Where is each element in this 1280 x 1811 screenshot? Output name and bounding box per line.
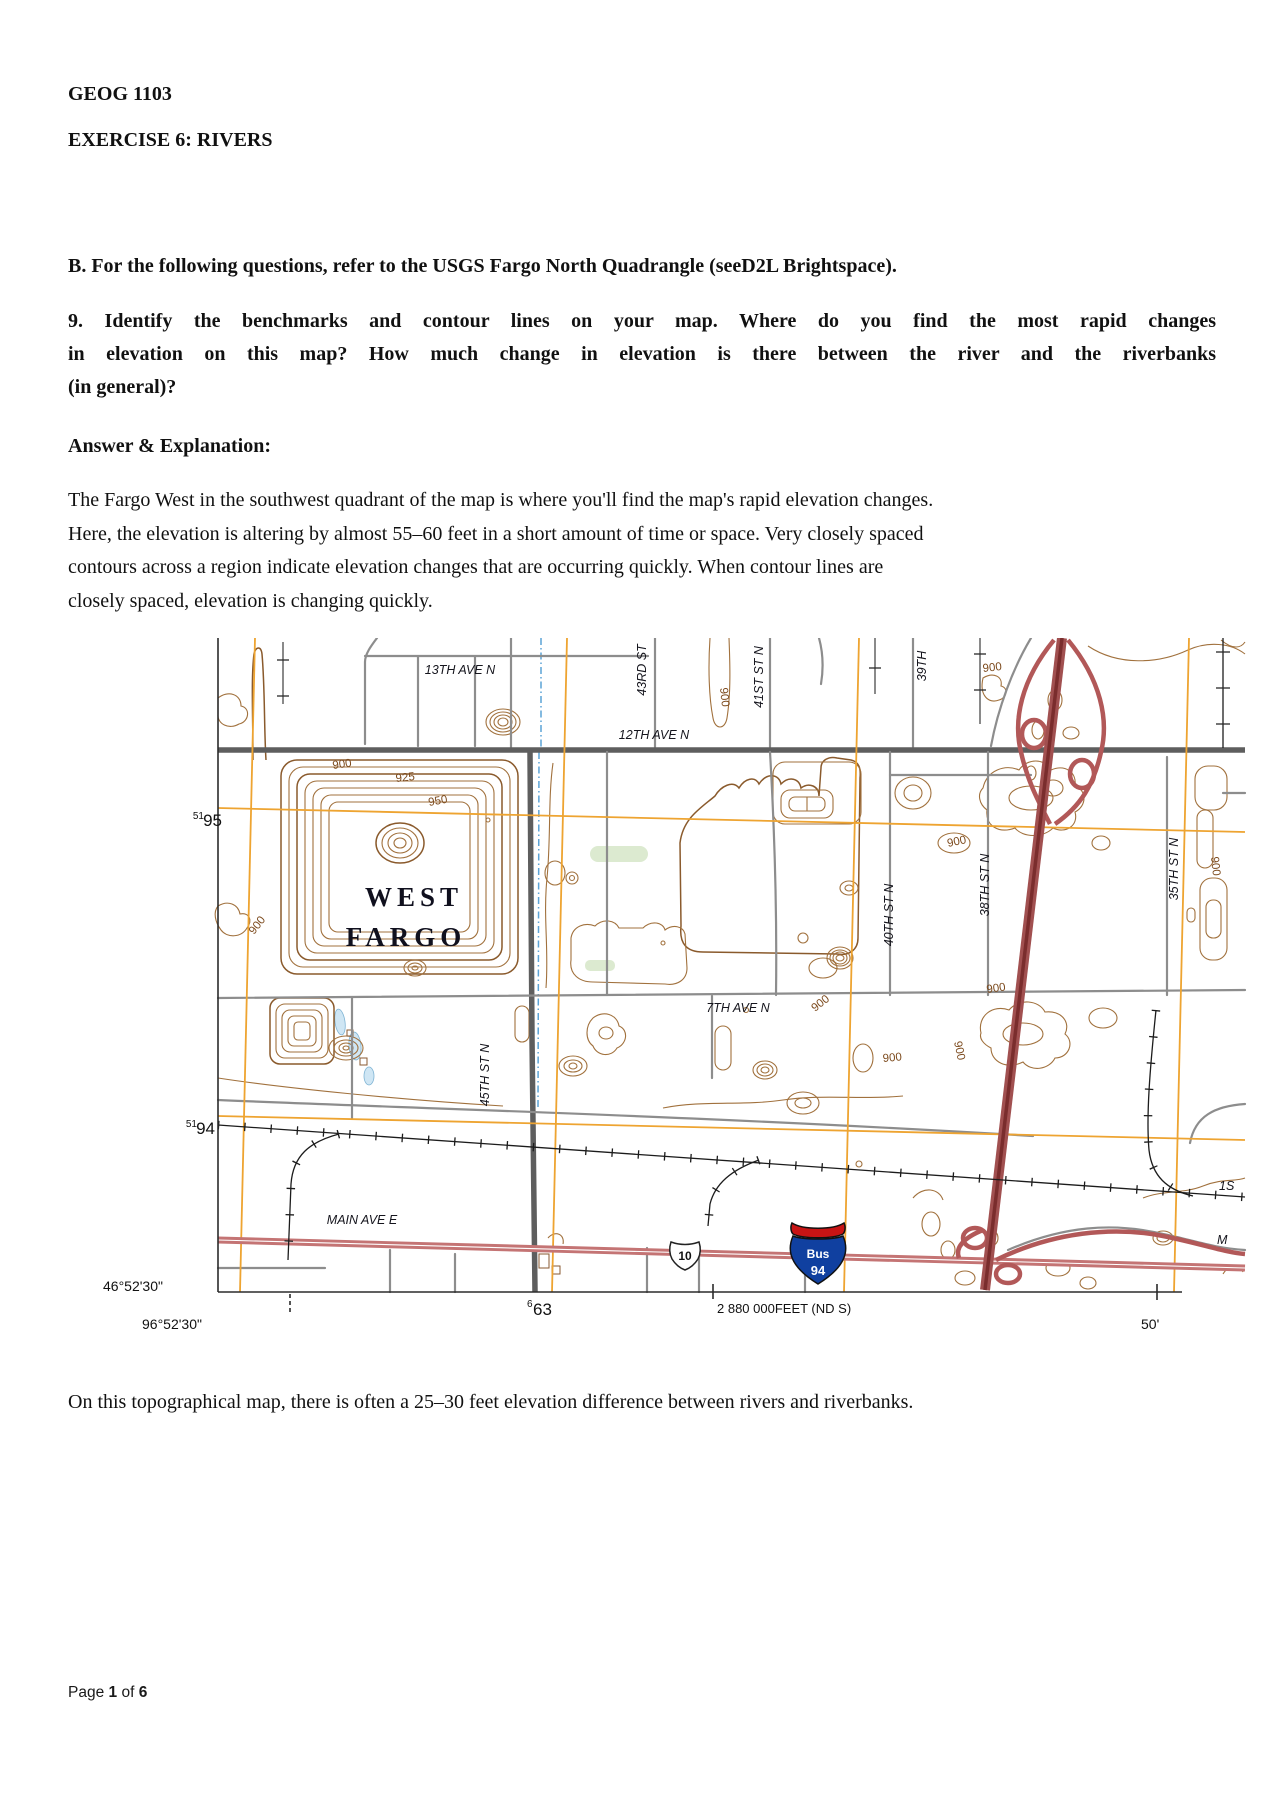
svg-text:Bus: Bus: [807, 1247, 830, 1261]
answer-line: Here, the elevation is altering by almos…: [68, 518, 1216, 552]
contour-label-900: 900: [882, 1051, 902, 1065]
utm-grid: [218, 638, 1245, 1292]
course-code: GEOG 1103: [68, 78, 1216, 111]
contour-label-925: 925: [395, 771, 415, 785]
contour-label-900: 900: [332, 757, 353, 772]
place-label-west: WEST: [365, 882, 463, 912]
street-label-cut-2: M: [1217, 1233, 1228, 1247]
answer-line: The Fargo West in the southwest quadrant…: [68, 484, 1216, 518]
grid-easting-663: 663: [527, 1299, 552, 1319]
contour-label-900: 900: [982, 661, 1002, 675]
street-label-35th-st: 35TH ST N: [1167, 837, 1181, 900]
street-label-main-ave: MAIN AVE E: [327, 1213, 398, 1227]
footer-of-word: of: [121, 1684, 134, 1701]
street-label-39th-st: 39TH: [915, 650, 929, 682]
page-footer: Page 1 of 6: [68, 1684, 147, 1702]
question-9: 9. Identify the benchmarks and contour l…: [68, 305, 1216, 404]
road-45th-st: [530, 752, 535, 1292]
us-route-10-shield: 10: [670, 1242, 701, 1270]
svg-text:94: 94: [811, 1263, 826, 1278]
question-line: (in general)?: [68, 371, 1216, 404]
interstate-bus-94-shield: Bus 94: [790, 1223, 845, 1284]
street-label-cut-1: 1S: [1219, 1179, 1235, 1193]
contour-label-900: 900: [1208, 856, 1222, 876]
latitude-label: 46°52'30": [103, 1278, 163, 1294]
street-label-13th-ave: 13TH AVE N: [425, 663, 496, 677]
longitude-label: 96°52'30": [142, 1316, 202, 1332]
contour-lines: [215, 638, 1245, 1289]
street-label-12th-ave: 12TH AVE N: [619, 728, 690, 742]
svg-text:10: 10: [678, 1249, 692, 1263]
street-label-45th-st: 45TH ST N: [478, 1043, 492, 1106]
question-line: 9. Identify the benchmarks and contour l…: [68, 305, 1216, 338]
corner-minute-label: 50': [1141, 1316, 1159, 1332]
street-label-43rd-st: 43RD ST: [635, 643, 649, 696]
contour-label-900: 900: [986, 981, 1007, 996]
document-page: GEOG 1103 EXERCISE 6: RIVERS B. For the …: [0, 0, 1280, 1811]
footer-total-pages: 6: [139, 1684, 148, 1701]
answer-paragraph: The Fargo West in the southwest quadrant…: [68, 484, 1216, 618]
contour-label-950: 950: [427, 794, 448, 809]
contour-label-900: 900: [809, 993, 832, 1014]
footer-page-number: 1: [109, 1684, 118, 1701]
street-label-38th-st: 38TH ST N: [978, 853, 992, 916]
street-label-41st-st: 41ST ST N: [752, 645, 766, 708]
street-label-40th-st: 40TH ST N: [882, 883, 896, 946]
road-network: [218, 638, 1245, 1292]
map-labels: 13TH AVE N 12TH AVE N 7TH AVE N MAIN AVE…: [103, 643, 1235, 1332]
building-outlines: [347, 1030, 560, 1274]
closing-paragraph: On this topographical map, there is ofte…: [68, 1386, 1216, 1419]
footer-page-word: Page: [68, 1684, 104, 1701]
answer-line: closely spaced, elevation is changing qu…: [68, 585, 1216, 619]
exercise-title: EXERCISE 6: RIVERS: [68, 124, 1216, 157]
place-label-fargo: FARGO: [346, 922, 467, 952]
grid-northing-5194: 5194: [186, 1119, 215, 1138]
contour-label-900: 900: [946, 834, 967, 850]
state-plane-feet-label: 2 880 000FEET (ND S): [717, 1301, 851, 1316]
contour-label-900: 900: [951, 1040, 967, 1061]
section-b-heading: B. For the following questions, refer to…: [68, 250, 1216, 283]
answer-heading: Answer & Explanation:: [68, 430, 1216, 463]
contour-label-900: 900: [247, 914, 268, 937]
highways: [218, 638, 1245, 1290]
grid-northing-5195: 5195: [193, 811, 222, 830]
question-line: in elevation on this map? How much chang…: [68, 338, 1216, 371]
answer-line: contours across a region indicate elevat…: [68, 551, 1216, 585]
road-7th-ave: [218, 990, 1245, 998]
topo-map-figure: 13TH AVE N 12TH AVE N 7TH AVE N MAIN AVE…: [103, 638, 1253, 1338]
street-label-7th-ave: 7TH AVE N: [706, 1001, 770, 1015]
contour-label-900: 900: [717, 687, 731, 707]
